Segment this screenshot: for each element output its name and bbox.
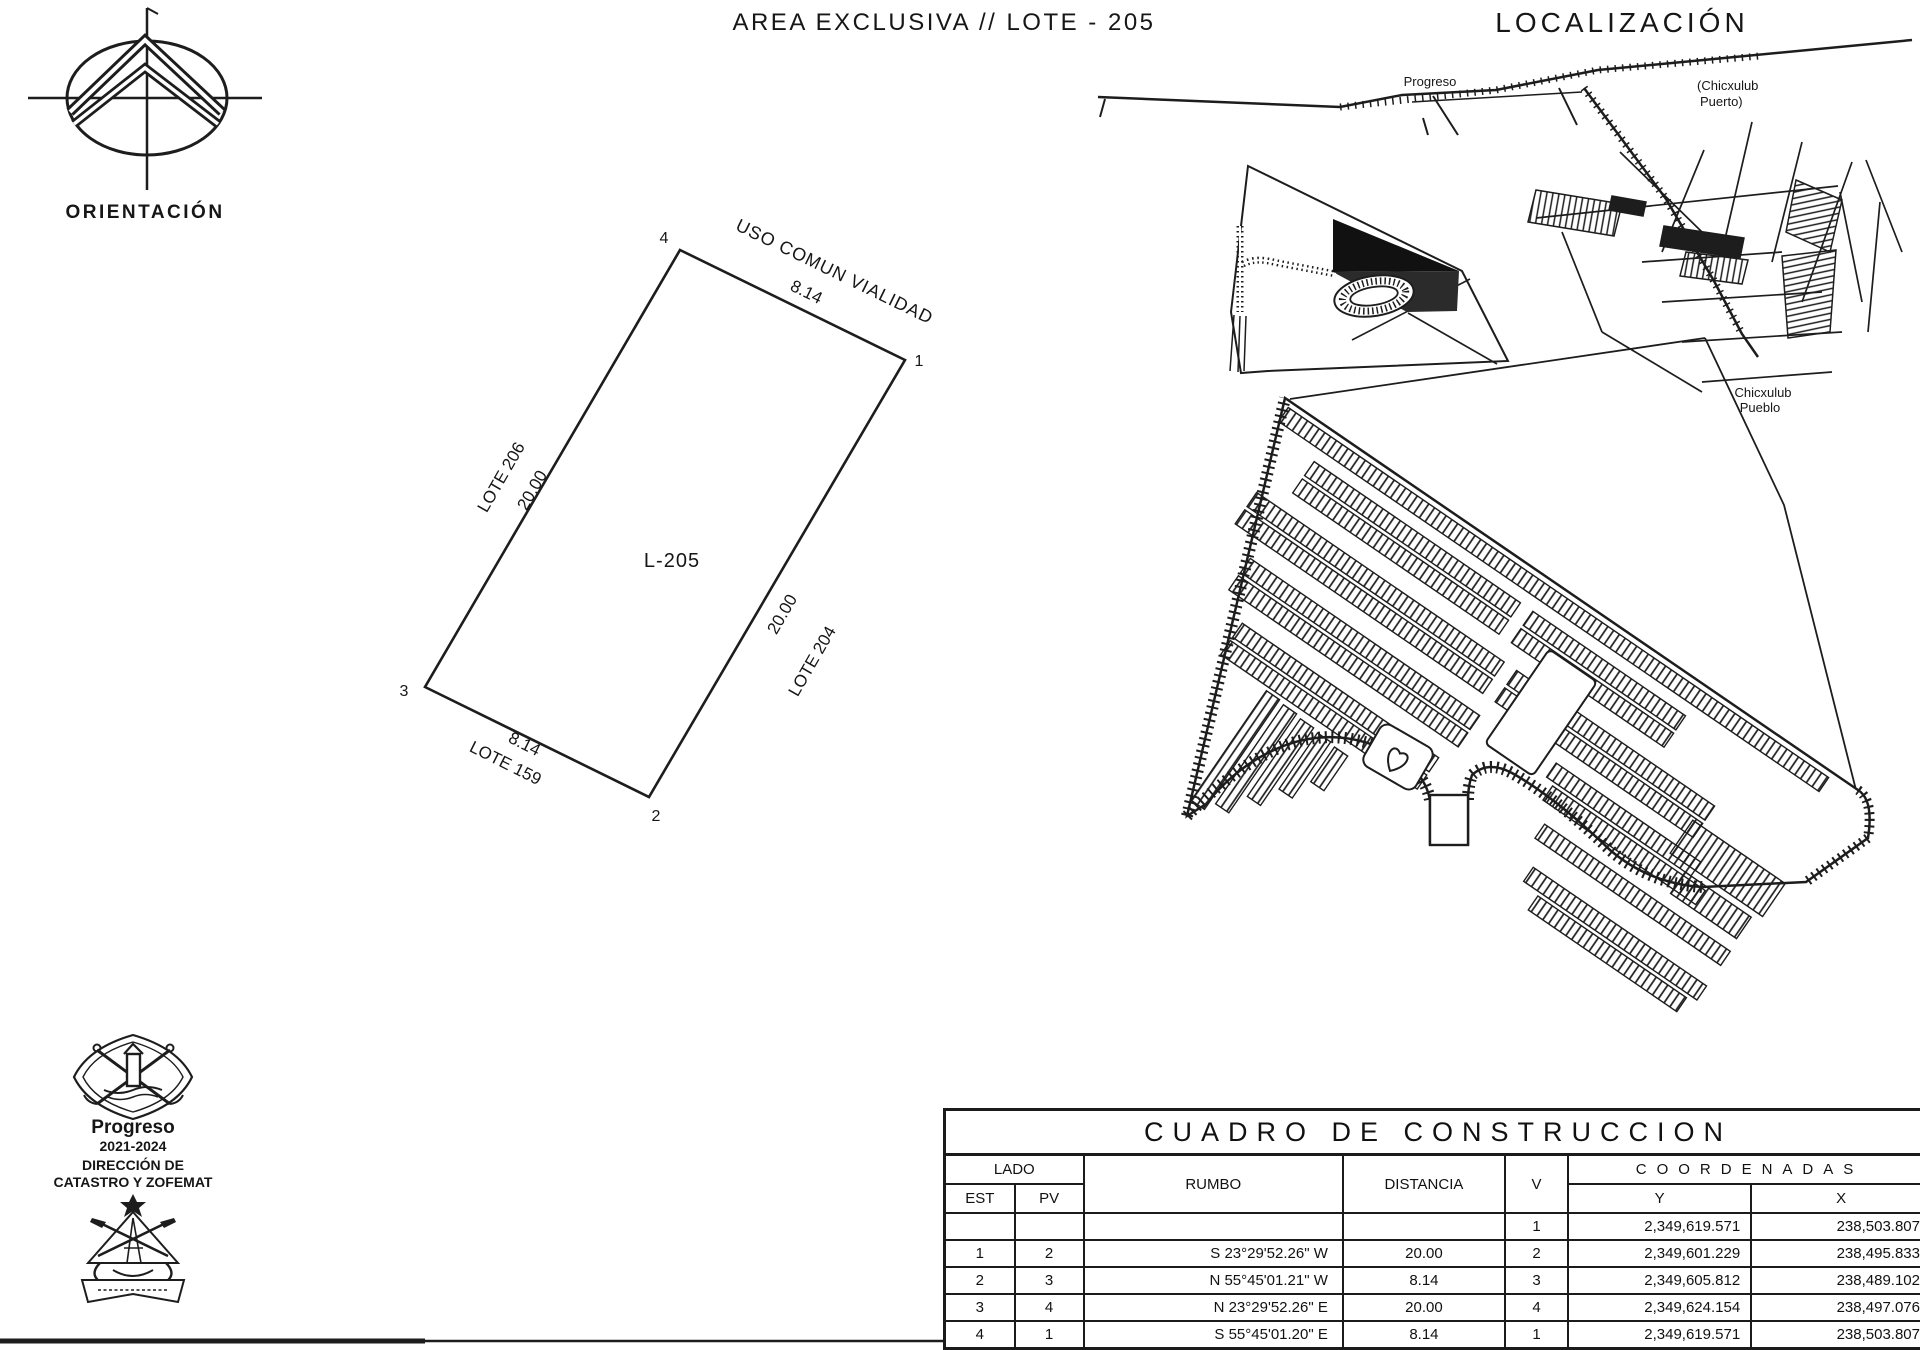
cell-x: 238,497.076	[1751, 1294, 1920, 1321]
map-label-puerto-1: (Chicxulub	[1697, 78, 1758, 93]
page-title: AREA EXCLUSIVA // LOTE - 205	[732, 9, 1155, 36]
cell-v: 2	[1505, 1240, 1568, 1267]
pueblo-blocks	[1528, 180, 1842, 338]
table-row: 3 4 N 23°29'52.26" E 20.00 4 2,349,624.1…	[945, 1294, 1920, 1321]
road-stub	[1430, 795, 1468, 845]
agency-dept-line1: DIRECCIÓN DE	[82, 1156, 184, 1173]
compass-rose-icon	[28, 8, 262, 190]
cell-y: 2,349,601.229	[1568, 1240, 1751, 1267]
cell-rumbo: S 55°45'01.20" E	[1084, 1321, 1343, 1349]
orientation-label: ORIENTACIÓN	[65, 201, 224, 223]
cell-rumbo	[1084, 1213, 1343, 1240]
vertex-4-label: 4	[660, 230, 669, 247]
lot-boundary	[425, 250, 905, 797]
col-header-lado: LADO	[945, 1155, 1084, 1185]
vertex-2-label: 2	[652, 808, 661, 825]
cell-pv: 1	[1015, 1321, 1084, 1349]
localization-heading: LOCALIZACIÓN	[1495, 7, 1748, 38]
col-header-rumbo: RUMBO	[1084, 1155, 1343, 1214]
agency-dept-line2: CATASTRO Y ZOFEMAT	[54, 1174, 213, 1190]
cell-rumbo: N 23°29'52.26" E	[1084, 1294, 1343, 1321]
table-row: 1 2 S 23°29'52.26" W 20.00 2 2,349,601.2…	[945, 1240, 1920, 1267]
seal-progreso-icon	[74, 1035, 192, 1119]
cell-distancia: 8.14	[1343, 1267, 1505, 1294]
cell-est	[945, 1213, 1015, 1240]
subdivision-plan	[1074, 398, 1870, 1104]
cell-x: 238,503.807	[1751, 1321, 1920, 1349]
table-row: 2 3 N 55°45'01.21" W 8.14 3 2,349,605.81…	[945, 1267, 1920, 1294]
localization-map: Progreso (Chicxulub Puerto) Chicxulub Pu…	[1074, 40, 1912, 1104]
map-label-pueblo-1: Chicxulub	[1734, 385, 1791, 400]
lot-label: L-205	[644, 550, 700, 572]
east-neighbor-label: LOTE 204	[785, 623, 840, 700]
cell-est: 3	[945, 1294, 1015, 1321]
map-label-progreso: Progreso	[1404, 74, 1457, 89]
cell-y: 2,349,619.571	[1568, 1321, 1751, 1349]
cell-v: 1	[1505, 1321, 1568, 1349]
cell-distancia	[1343, 1213, 1505, 1240]
agency-period-label: 2021-2024	[100, 1138, 167, 1154]
north-dimension: 8.14	[787, 276, 825, 308]
vertex-1-label: 1	[915, 353, 924, 370]
cell-est: 4	[945, 1321, 1015, 1349]
table-row: 1 2,349,619.571 238,503.807	[945, 1213, 1920, 1240]
cell-x: 238,503.807	[1751, 1213, 1920, 1240]
agency-city-label: Progreso	[91, 1117, 174, 1138]
table-title: CUADRO DE CONSTRUCCION	[945, 1110, 1920, 1155]
col-header-x: X	[1751, 1184, 1920, 1213]
lot-diagram: L-205 USO COMUN VIALIDAD 8.14 LOTE 206 2…	[400, 215, 937, 825]
cell-rumbo: N 55°45'01.21" W	[1084, 1267, 1343, 1294]
cell-x: 238,495.833	[1751, 1240, 1920, 1267]
col-header-pv: PV	[1015, 1184, 1084, 1213]
map-label-puerto-2: Puerto)	[1700, 94, 1743, 109]
col-header-y: Y	[1568, 1184, 1751, 1213]
cell-pv: 4	[1015, 1294, 1084, 1321]
detail-inset	[1230, 166, 1508, 373]
seal-catastro-icon	[82, 1194, 184, 1302]
cell-y: 2,349,624.154	[1568, 1294, 1751, 1321]
coastal-road	[1098, 40, 1912, 135]
table-row: 4 1 S 55°45'01.20" E 8.14 1 2,349,619.57…	[945, 1321, 1920, 1349]
cell-y: 2,349,619.571	[1568, 1213, 1751, 1240]
construction-table: CUADRO DE CONSTRUCCION LADO RUMBO DISTAN…	[943, 1108, 1920, 1350]
col-header-distancia: DISTANCIA	[1343, 1155, 1505, 1214]
col-header-coordenadas: COORDENADAS	[1568, 1155, 1920, 1185]
plan-sheet: AREA EXCLUSIVA // LOTE - 205 LOCALIZACIÓ…	[0, 0, 1920, 1350]
cell-x: 238,489.102	[1751, 1267, 1920, 1294]
cell-y: 2,349,605.812	[1568, 1267, 1751, 1294]
cell-distancia: 20.00	[1343, 1294, 1505, 1321]
cell-pv: 3	[1015, 1267, 1084, 1294]
cell-pv	[1015, 1213, 1084, 1240]
col-header-v: V	[1505, 1155, 1568, 1214]
cell-est: 1	[945, 1240, 1015, 1267]
map-label-pueblo-2: Pueblo	[1740, 400, 1780, 415]
cell-distancia: 8.14	[1343, 1321, 1505, 1349]
cell-rumbo: S 23°29'52.26" W	[1084, 1240, 1343, 1267]
cell-v: 4	[1505, 1294, 1568, 1321]
col-header-est: EST	[945, 1184, 1015, 1213]
cell-est: 2	[945, 1267, 1015, 1294]
cell-v: 3	[1505, 1267, 1568, 1294]
cell-distancia: 20.00	[1343, 1240, 1505, 1267]
vertex-3-label: 3	[400, 683, 409, 700]
cell-v: 1	[1505, 1213, 1568, 1240]
east-dimension: 20.00	[763, 591, 801, 637]
cell-pv: 2	[1015, 1240, 1084, 1267]
